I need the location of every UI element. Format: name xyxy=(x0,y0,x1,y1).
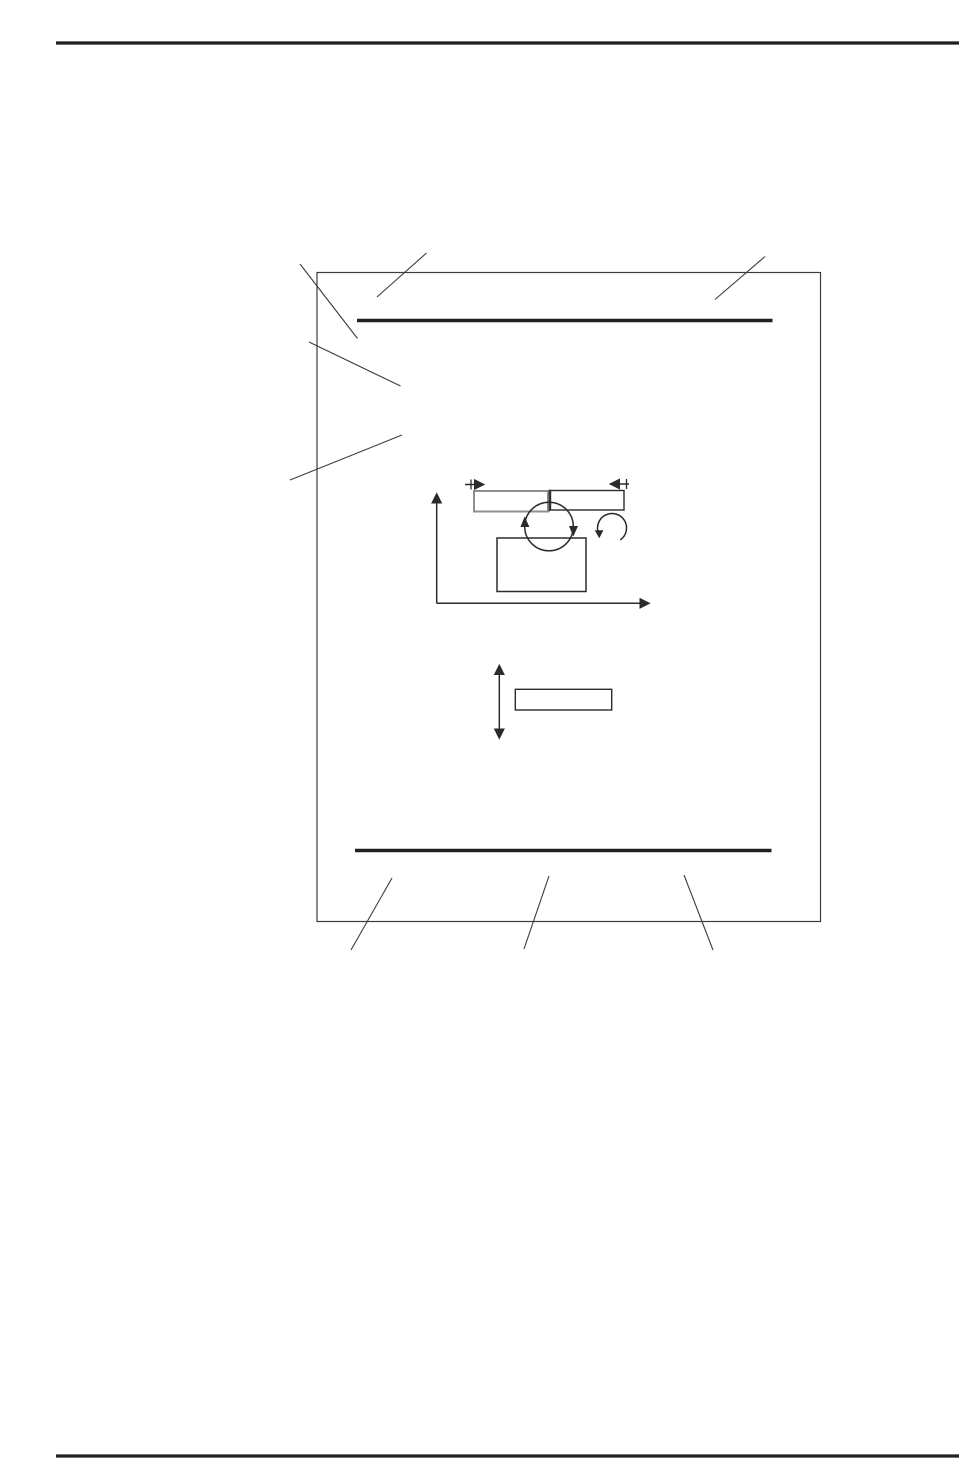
callout-line-bottom-right xyxy=(684,875,713,950)
figure-canvas xyxy=(0,0,959,1458)
counter-rotation-arc-arrowhead xyxy=(595,530,604,538)
callout-line-top-left-corner xyxy=(300,264,358,339)
tray-rect-left xyxy=(474,491,548,512)
callout-line-lower-left xyxy=(290,435,402,480)
callout-line-bottom-center xyxy=(524,876,549,949)
callout-line-top-bar xyxy=(377,253,427,297)
drum-rotation-arrowhead-right-down xyxy=(569,526,578,537)
callout-line-bottom-left xyxy=(351,878,392,950)
manual-page xyxy=(0,0,959,1458)
drum-rotation-arrowhead-left-up xyxy=(520,517,529,528)
printer-body-rect xyxy=(497,538,586,592)
figure-shape-layer xyxy=(56,43,959,1456)
figure-frame xyxy=(317,273,821,922)
elevation-rect xyxy=(515,689,611,710)
callout-line-mid-left xyxy=(309,342,401,386)
callout-line-top-right xyxy=(715,257,765,300)
counter-rotation-arc xyxy=(598,513,627,539)
tray-rect-right xyxy=(551,491,625,511)
